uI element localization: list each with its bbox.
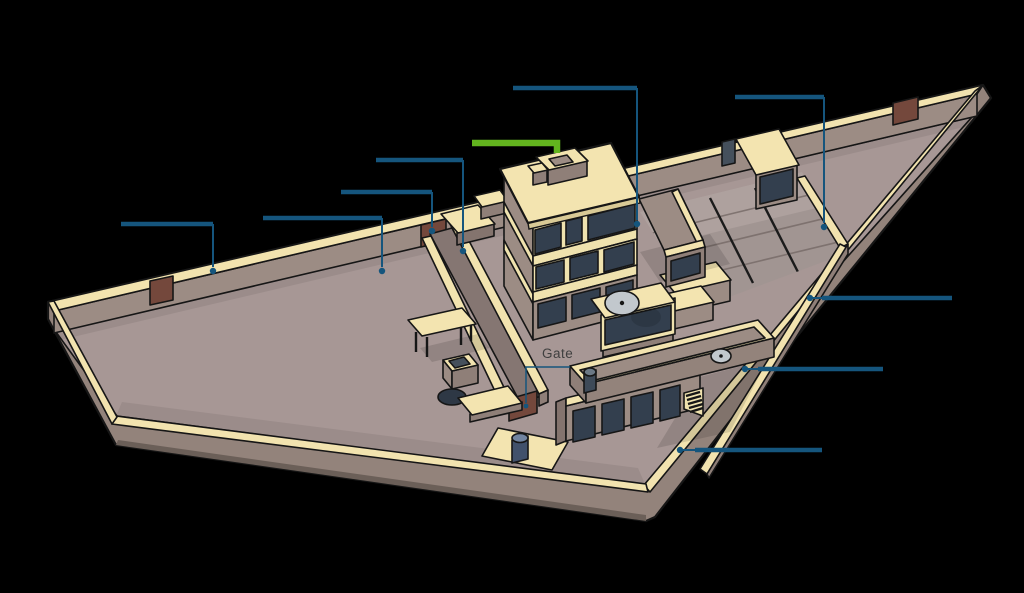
wall-doorway: [722, 139, 735, 166]
callout-green-bar: [472, 143, 557, 153]
west-gate-door: [150, 276, 173, 305]
terrace-dish: [711, 349, 731, 363]
gate-label: Gate: [542, 346, 573, 361]
water-tank: [584, 368, 596, 393]
compound-diagram: Gate: [0, 0, 1024, 593]
compound-illustration: [0, 0, 1024, 593]
